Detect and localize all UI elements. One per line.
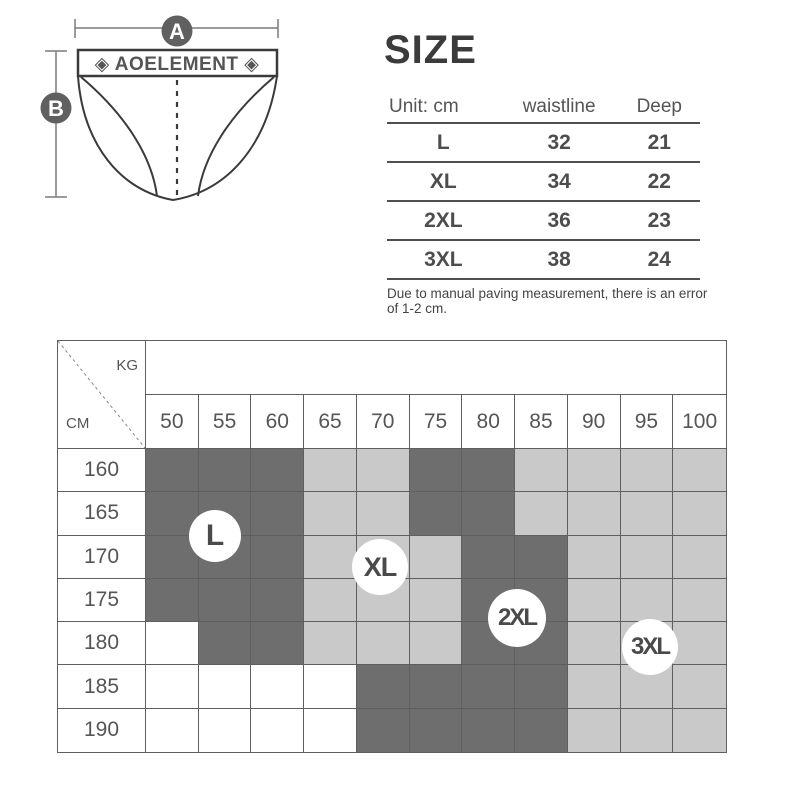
deep-cell: 21 (619, 131, 700, 155)
grid-cell (621, 449, 674, 492)
grid-cell (146, 709, 199, 752)
size-cell: 3XL (387, 248, 500, 272)
grid-cell (621, 492, 674, 535)
size-cell: L (387, 131, 500, 155)
kg-tick: 85 (515, 395, 568, 449)
kg-tick: 80 (462, 395, 515, 449)
grid-header-strip (146, 341, 726, 395)
grid-cell (304, 536, 357, 579)
waistline-cell: 38 (500, 248, 619, 272)
grid-cell (462, 449, 515, 492)
grid-cell (462, 709, 515, 752)
cm-tick: 165 (58, 492, 146, 535)
waistline-cell: 36 (500, 209, 619, 233)
grid-cell (357, 665, 410, 708)
grid-cell (199, 622, 252, 665)
cm-tick: 175 (58, 579, 146, 622)
cm-tick: 185 (58, 665, 146, 708)
kg-tick: 75 (410, 395, 463, 449)
grid-cell (304, 665, 357, 708)
deep-cell: 22 (619, 170, 700, 194)
grid-cell (568, 622, 621, 665)
waistline-cell: 32 (500, 131, 619, 155)
deep-cell: 23 (619, 209, 700, 233)
grid-cell (568, 665, 621, 708)
size-cell: 2XL (387, 209, 500, 233)
grid-cell (357, 449, 410, 492)
grid-cell (146, 449, 199, 492)
grid-cell (673, 579, 726, 622)
grid-cell (515, 665, 568, 708)
size-marker-3xl: 3XL (622, 619, 678, 675)
grid-cell (673, 709, 726, 752)
kg-tick: 95 (621, 395, 674, 449)
waistline-cell: 34 (500, 170, 619, 194)
grid-cell (199, 665, 252, 708)
grid-cell (251, 622, 304, 665)
grid-cell (304, 622, 357, 665)
grid-cell (568, 492, 621, 535)
cm-axis-label: CM (66, 415, 89, 432)
header-unit: Unit: cm (387, 96, 500, 118)
grid-cell (410, 579, 463, 622)
size-row-l: L 32 21 (387, 124, 700, 163)
size-marker-xl: XL (352, 539, 408, 595)
grid-cell (462, 665, 515, 708)
grid-cell (621, 579, 674, 622)
grid-cell (251, 665, 304, 708)
grid-cell (515, 449, 568, 492)
grid-cell (673, 536, 726, 579)
brand-label: ◈ AOELEMENT ◈ (95, 54, 260, 75)
grid-cell (673, 449, 726, 492)
kg-tick: 70 (357, 395, 410, 449)
kg-tick: 50 (146, 395, 199, 449)
kg-tick: 55 (199, 395, 252, 449)
brief-diagram: A B ◈ AOELEMENT ◈ (0, 0, 350, 250)
grid-cell (146, 665, 199, 708)
dimension-b-label: B (48, 96, 64, 121)
grid-cell (304, 492, 357, 535)
kg-tick: 100 (673, 395, 726, 449)
grid-cell (251, 449, 304, 492)
grid-cell (251, 579, 304, 622)
grid-cell (357, 622, 410, 665)
grid-cell (410, 449, 463, 492)
grid-cell (673, 492, 726, 535)
grid-cell (462, 536, 515, 579)
deep-cell: 24 (619, 248, 700, 272)
grid-cell (304, 579, 357, 622)
grid-cell (410, 709, 463, 752)
leg-seam-right (198, 77, 274, 196)
dimension-b-line (45, 51, 67, 197)
grid-cell (304, 709, 357, 752)
size-row-3xl: 3XL 38 24 (387, 241, 700, 280)
cm-tick: 180 (58, 622, 146, 665)
size-cell: XL (387, 170, 500, 194)
grid-cell (199, 579, 252, 622)
grid-cell (673, 665, 726, 708)
grid-cell (146, 579, 199, 622)
grid-cell (673, 622, 726, 665)
grid-cell (515, 536, 568, 579)
grid-cell (410, 536, 463, 579)
grid-cell (251, 536, 304, 579)
grid-cell (410, 665, 463, 708)
grid-cell (199, 709, 252, 752)
grid-cell (515, 492, 568, 535)
grid-cell (251, 492, 304, 535)
kg-tick: 65 (304, 395, 357, 449)
grid-cell (462, 492, 515, 535)
cm-tick: 170 (58, 536, 146, 579)
size-marker-2xl: 2XL (488, 589, 546, 647)
size-row-2xl: 2XL 36 23 (387, 202, 700, 241)
grid-corner-cell: KG CM (58, 341, 146, 449)
grid-cell (621, 709, 674, 752)
grid-cell (410, 492, 463, 535)
size-marker-l: L (189, 510, 241, 562)
size-row-xl: XL 34 22 (387, 163, 700, 202)
grid-cell (251, 709, 304, 752)
measurement-note: Due to manual paving measurement, there … (387, 286, 717, 316)
grid-cell (621, 536, 674, 579)
size-table-header-row: Unit: cm waistline Deep (387, 92, 700, 124)
size-chart-infographic: A B ◈ AOELEMENT ◈ SIZE Unit: cm waistlin… (0, 0, 790, 790)
grid-cell (410, 622, 463, 665)
grid-cell (304, 449, 357, 492)
grid-cell (357, 709, 410, 752)
kg-tick: 90 (568, 395, 621, 449)
grid-cell (146, 622, 199, 665)
cm-tick: 160 (58, 449, 146, 492)
header-deep: Deep (619, 96, 700, 118)
size-table: Unit: cm waistline Deep L 32 21 XL 34 22… (387, 92, 700, 280)
grid-cell (568, 536, 621, 579)
size-panel-title: SIZE (384, 28, 477, 73)
grid-cell (568, 449, 621, 492)
cm-tick: 190 (58, 709, 146, 752)
grid-cell (199, 449, 252, 492)
grid-cell (568, 579, 621, 622)
header-waistline: waistline (500, 96, 619, 118)
grid-cell (515, 709, 568, 752)
kg-axis-label: KG (116, 357, 138, 374)
grid-cell (357, 492, 410, 535)
grid-cell (568, 709, 621, 752)
dimension-a-label: A (169, 19, 185, 44)
kg-tick: 60 (251, 395, 304, 449)
